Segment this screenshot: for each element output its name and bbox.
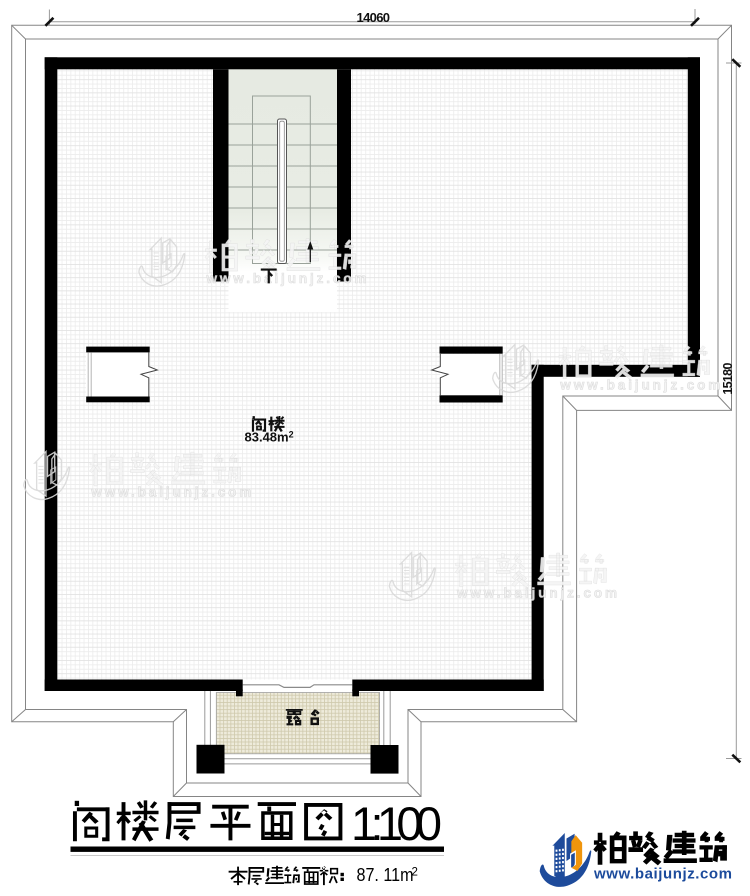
svg-text:2: 2 xyxy=(412,867,418,879)
svg-text:87. 11m: 87. 11m xyxy=(357,864,414,885)
svg-text:14060: 14060 xyxy=(357,10,391,25)
svg-text:15180: 15180 xyxy=(721,363,735,395)
svg-text:www.baijunjz.com: www.baijunjz.com xyxy=(593,866,732,883)
svg-text:83.48m2: 83.48m2 xyxy=(245,430,294,445)
svg-text:1:100: 1:100 xyxy=(351,797,442,850)
